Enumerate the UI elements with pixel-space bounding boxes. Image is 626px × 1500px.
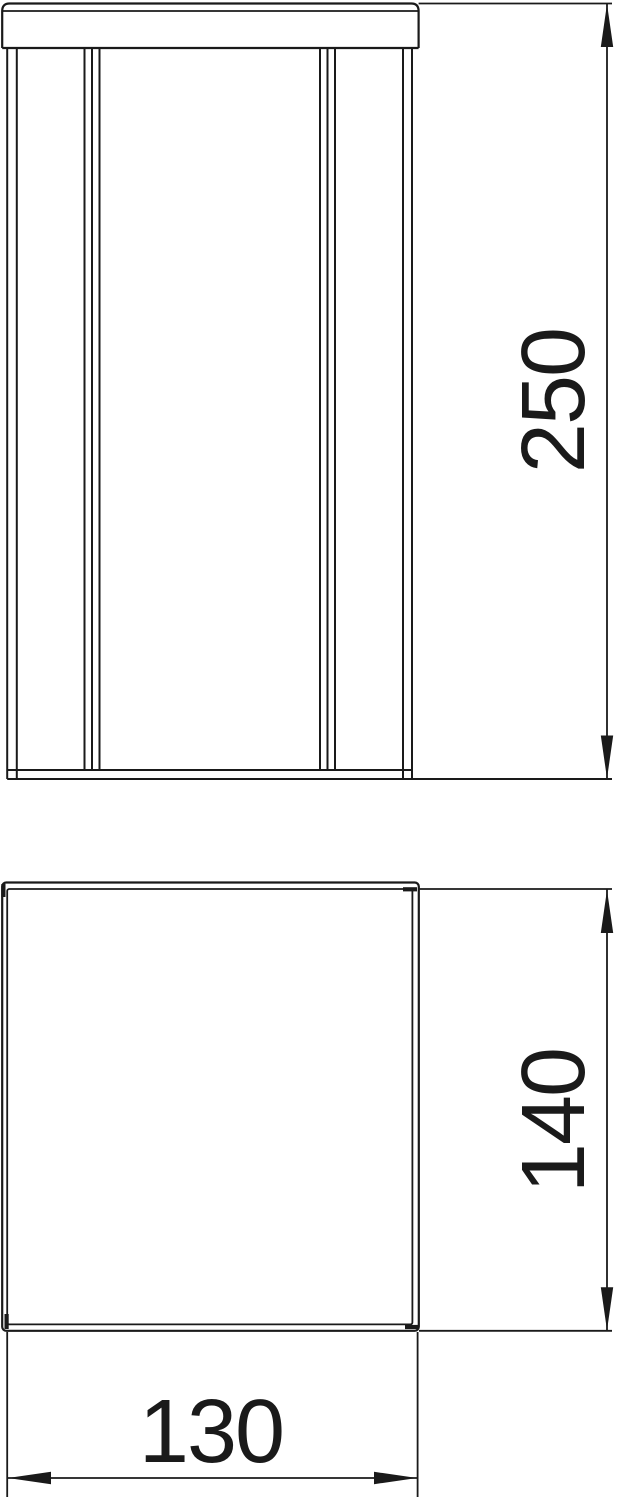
height-dimension: 250 (419, 4, 614, 779)
plan-outer-contour (2, 883, 419, 1331)
dimension-drawing-svg: 250 140 130 (0, 0, 626, 1500)
arrow-down-icon (601, 1287, 613, 1330)
depth-dimension: 140 (419, 889, 613, 1331)
width-dimension: 130 (7, 1332, 417, 1497)
arrow-up-icon (601, 890, 613, 933)
arrow-right-icon (374, 1472, 417, 1484)
height-dimension-label: 250 (504, 329, 604, 473)
depth-dimension-label: 140 (504, 1049, 604, 1193)
arrow-up-icon (601, 4, 613, 47)
arrow-down-icon (601, 736, 613, 779)
technical-drawing-canvas: 250 140 130 (0, 0, 626, 1500)
plan-inner-contour (7, 889, 412, 1324)
width-dimension-label: 130 (139, 1382, 283, 1482)
arrow-left-icon (8, 1472, 51, 1484)
plan-view (2, 883, 419, 1331)
